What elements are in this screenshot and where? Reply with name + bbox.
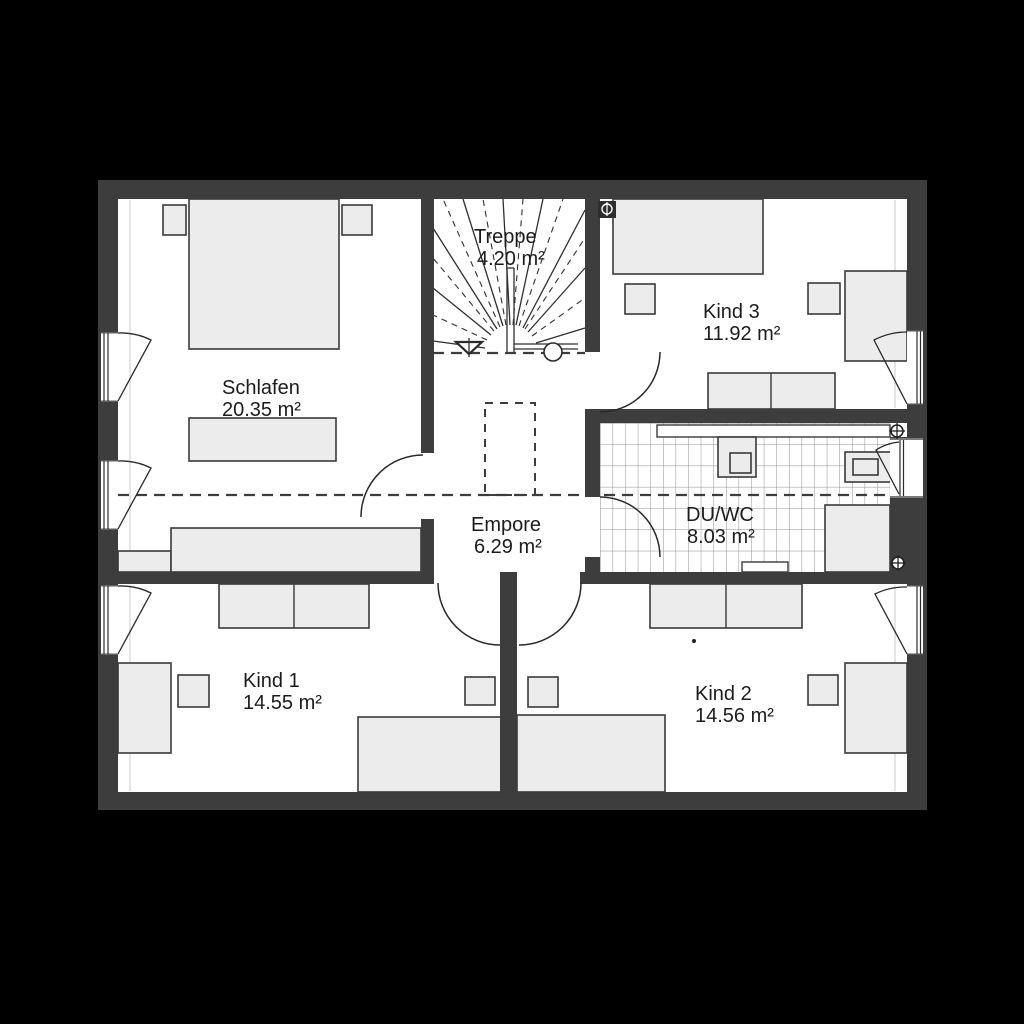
wardrobe-low [118, 551, 171, 572]
bed [517, 715, 665, 792]
wall-duwc-kind2 [580, 572, 907, 584]
desk-chair [808, 675, 838, 705]
wall-schlafen-kind1 [118, 572, 434, 584]
desk [845, 271, 907, 361]
floor-plan-canvas: Treppe 4.20 m² Schlafen 20.35 m² Kind 3 … [0, 0, 1024, 1024]
bed [613, 199, 763, 274]
room-area-empore: 6.29 m² [474, 536, 542, 558]
room-area-schlafen: 20.35 m² [222, 399, 301, 421]
room-label-kind1: Kind 1 [243, 670, 300, 692]
desk [118, 663, 171, 753]
wall-empore-duwc-lower [585, 557, 600, 584]
chair [528, 677, 558, 707]
stair-start-circle [544, 343, 562, 361]
wardrobe [171, 528, 421, 572]
desk-chair [808, 283, 840, 314]
desk-chair [178, 675, 209, 707]
room-label-kind3: Kind 3 [703, 301, 760, 323]
vent-icon [598, 201, 616, 218]
bed [358, 717, 502, 792]
wall-kind3-duwc [585, 409, 907, 423]
wall-empore-duwc-upper [585, 412, 600, 497]
double-bed [189, 199, 339, 349]
washbasin [845, 452, 891, 482]
floor-plan-svg: Treppe 4.20 m² Schlafen 20.35 m² Kind 3 … [0, 0, 1024, 1024]
vanity-counter [657, 425, 890, 437]
chair [465, 677, 495, 705]
room-area-treppe: 4.20 m² [477, 248, 545, 270]
room-label-empore: Empore [471, 514, 541, 536]
room-area-kind2: 14.56 m² [695, 705, 774, 727]
room-area-kind3: 11.92 m² [703, 323, 781, 345]
side-table [625, 284, 655, 314]
wall-kind1-kind2 [500, 572, 517, 792]
plan-dot [692, 639, 696, 643]
shower [825, 505, 890, 572]
room-area-kind1: 14.55 m² [243, 692, 322, 714]
room-label-duwc: DU/WC [686, 504, 754, 526]
wall-schlafen-stair [421, 199, 434, 453]
room-area-duwc: 8.03 m² [687, 526, 755, 548]
wall-stair-kind3 [585, 199, 600, 352]
nightstand [163, 205, 186, 235]
room-label-schlafen: Schlafen [222, 377, 300, 399]
desk [845, 663, 907, 753]
dresser [189, 418, 336, 461]
room-label-treppe: Treppe [474, 226, 537, 248]
nightstand [342, 205, 372, 235]
room-label-kind2: Kind 2 [695, 683, 752, 705]
toilet [742, 562, 788, 572]
